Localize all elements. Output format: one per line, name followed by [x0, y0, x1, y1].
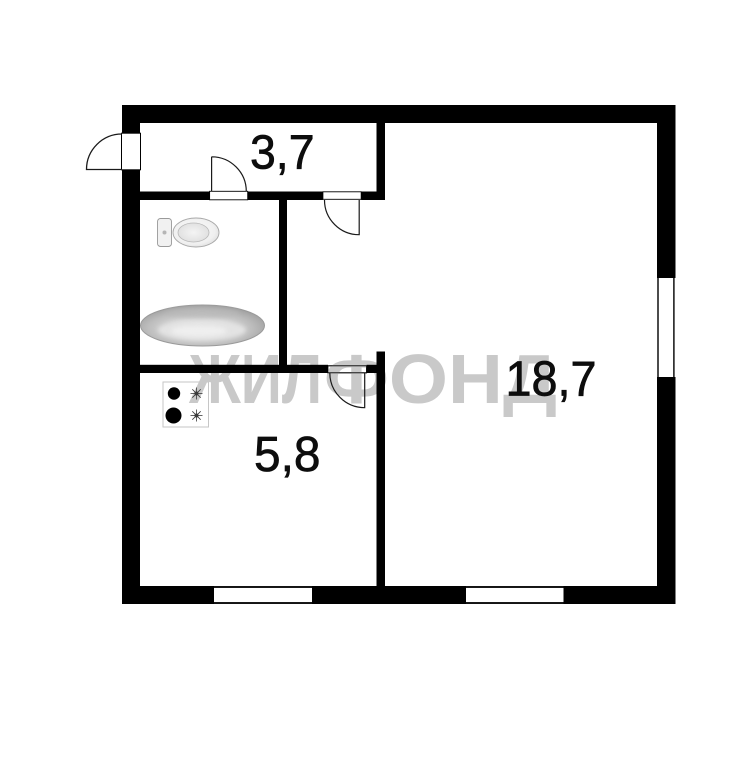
svg-text:ЖИЛ: ЖИЛ — [188, 340, 322, 418]
svg-text:5,8: 5,8 — [254, 428, 321, 482]
svg-text:18,7: 18,7 — [506, 353, 597, 407]
svg-text:3,7: 3,7 — [250, 127, 315, 180]
